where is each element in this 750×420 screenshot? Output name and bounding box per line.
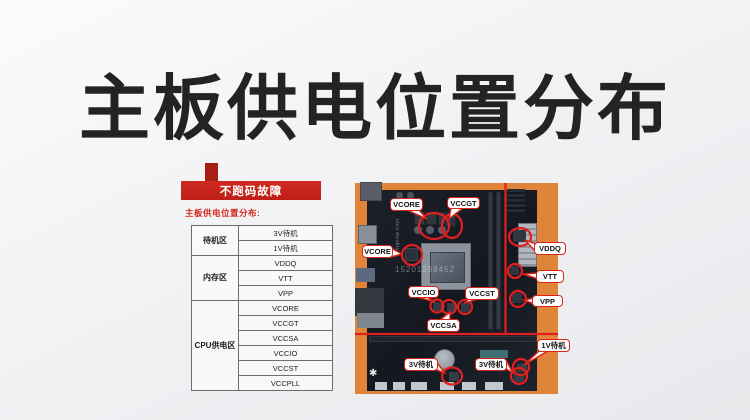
table-cell: VCCSA [239,331,333,346]
callout-vccgt: VCCGT [447,197,480,209]
table-cell: 1V待机 [239,241,333,256]
board-star-mark: ✱ [369,368,377,379]
table-cell: VPP [239,286,333,301]
callout-vtt: VTT [536,270,564,283]
callout-vccst: VCCST [465,287,499,300]
callout-vccsa: VCCSA [427,319,460,332]
table-group-label: 内存区 [192,256,239,301]
callout-tail [407,210,427,219]
circle-vtt [508,264,522,278]
callout-tail [524,351,548,365]
table-cell: VCCST [239,361,333,376]
table-title: 主板供电位置分布: [185,207,260,219]
callout-3v-standby-left: 3V待机 [404,358,438,371]
callout-vpp: VPP [532,295,563,307]
circle-vpp [510,291,526,307]
table-row: 待机区 3V待机 [192,226,333,241]
table-cell: VTT [239,271,333,286]
board-print-text: ultra durable [395,219,400,251]
callout-tail [449,208,463,219]
callout-vcore-top: VCORE [390,198,423,211]
page-title: 主板供电位置分布 [0,66,750,154]
callout-vcore-left: VCORE [362,245,393,258]
callout-vccio: VCCIO [408,286,439,298]
callout-3v-standby-right: 3V待机 [475,358,507,371]
table-cell: 3V待机 [239,226,333,241]
motherboard-photo: 15201298452 ultra durable ✱ [355,183,558,394]
callout-vddq: VDDQ [534,242,566,255]
power-location-table: 待机区 3V待机 1V待机 内存区 VDDQ VTT VPP CPU供电区 VC… [191,225,333,391]
infographic: 主板供电位置分布 不跑码故障 主板供电位置分布: 待机区 3V待机 1V待机 内… [0,0,750,420]
fault-banner: 不跑码故障 [181,181,321,200]
table-cell: VCCIO [239,346,333,361]
circle-3v-standby-left [442,368,462,385]
table-cell: VCCGT [239,316,333,331]
table-cell: VCCPLL [239,376,333,391]
table-row: 内存区 VDDQ [192,256,333,271]
circle-vcore-mosfet [402,245,422,265]
table-group-label: CPU供电区 [192,301,239,391]
table-cell: VDDQ [239,256,333,271]
circle-3v-standby-right [511,368,527,384]
annotation-overlay [355,183,558,394]
table-group-label: 待机区 [192,226,239,256]
table-row: CPU供电区 VCORE [192,301,333,316]
callout-1v-standby: 1V待机 [537,339,570,352]
table-cell: VCORE [239,301,333,316]
circle-vccgt [442,214,462,238]
phone-watermark: 15201298452 [395,265,455,274]
